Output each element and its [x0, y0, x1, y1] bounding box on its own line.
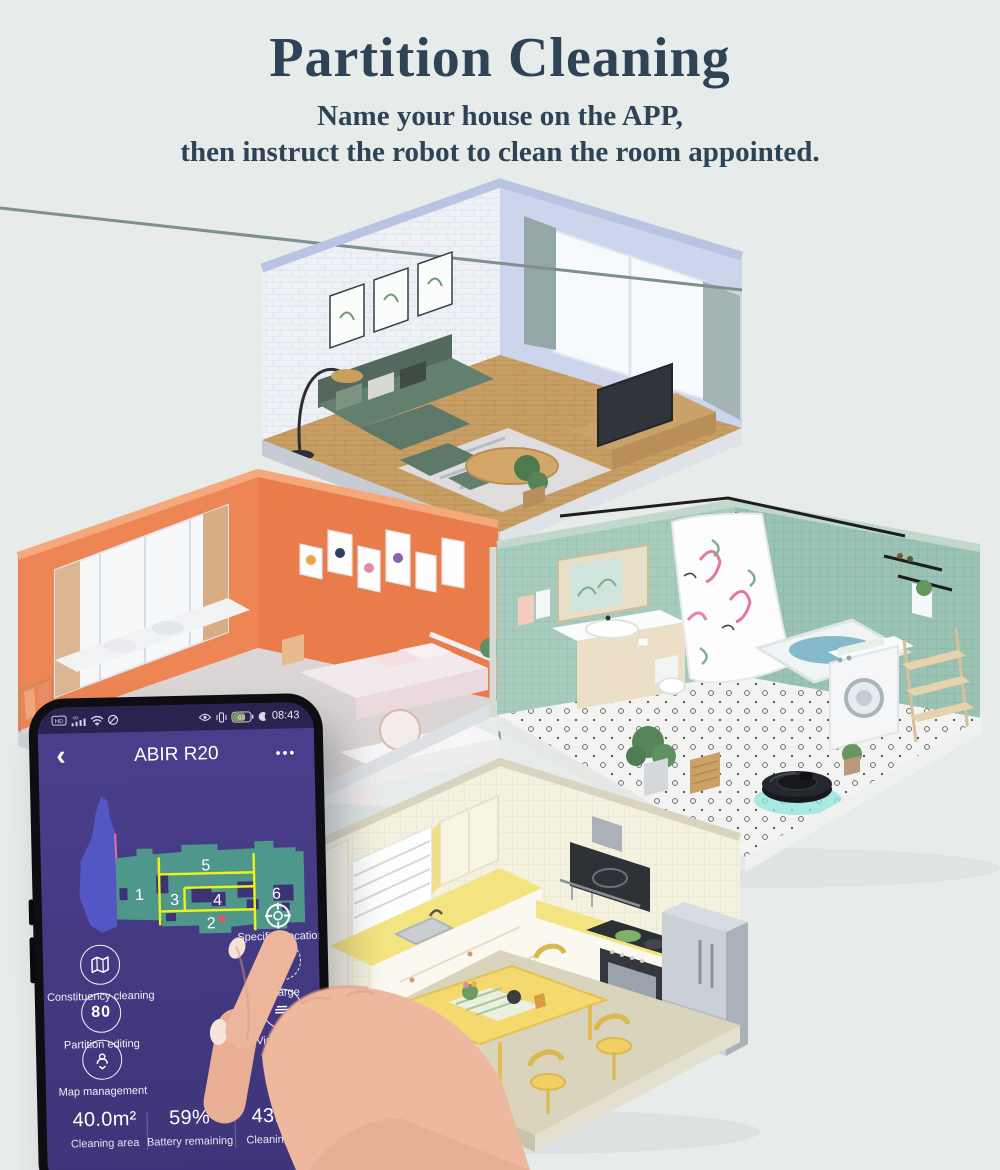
dashed-plus-icon [270, 949, 292, 971]
map-unexplored-area [77, 796, 117, 933]
svg-text:2: 2 [207, 915, 216, 932]
app-title: ABIR R20 [38, 741, 314, 769]
cleaning-stats: 40.0m² Cleaning area 59% Battery remaini… [46, 1100, 323, 1166]
volume-button [29, 899, 35, 925]
stat-cleaning-time: 43Min Cleaning time [229, 1104, 324, 1147]
hidden-action-button[interactable] [228, 1034, 324, 1076]
more-menu-button[interactable]: ••• [275, 744, 296, 760]
svg-text:4: 4 [213, 892, 222, 909]
svg-text:4G: 4G [72, 715, 79, 720]
alarm-icon [258, 710, 268, 721]
map-pin-person-icon [91, 1048, 113, 1070]
svg-text:HD: HD [55, 719, 64, 725]
svg-text:6: 6 [272, 886, 281, 903]
do-not-disturb-icon [107, 714, 118, 725]
svg-text:1: 1 [135, 887, 144, 904]
partition-grid-icon: 80 [91, 1004, 111, 1022]
advertisement-page: { "hero": { "title": "Partition Cleaning… [0, 0, 1000, 1170]
map-outline-icon [89, 954, 111, 976]
hd-badge-icon: HD [51, 715, 66, 725]
phone-mockup: HD 4G [28, 693, 333, 1170]
power-button [29, 937, 35, 983]
clock-time: 08:43 [272, 709, 300, 722]
stat-battery-remaining: 59% Battery remaining [139, 1106, 240, 1149]
eye-comfort-icon [199, 712, 212, 722]
svg-text:5: 5 [201, 857, 210, 874]
vibrate-icon [216, 711, 228, 722]
circle-icon [271, 997, 293, 1019]
kitchen [322, 762, 748, 1152]
svg-text:3: 3 [170, 892, 179, 909]
map-management-button[interactable]: Map management [47, 1039, 158, 1099]
app-screen: HD 4G [37, 702, 324, 1170]
wifi-icon [90, 714, 103, 725]
battery-icon: 69 [232, 711, 254, 722]
signal-strength-icon: 4G [70, 715, 86, 726]
svg-text:69: 69 [238, 714, 246, 721]
